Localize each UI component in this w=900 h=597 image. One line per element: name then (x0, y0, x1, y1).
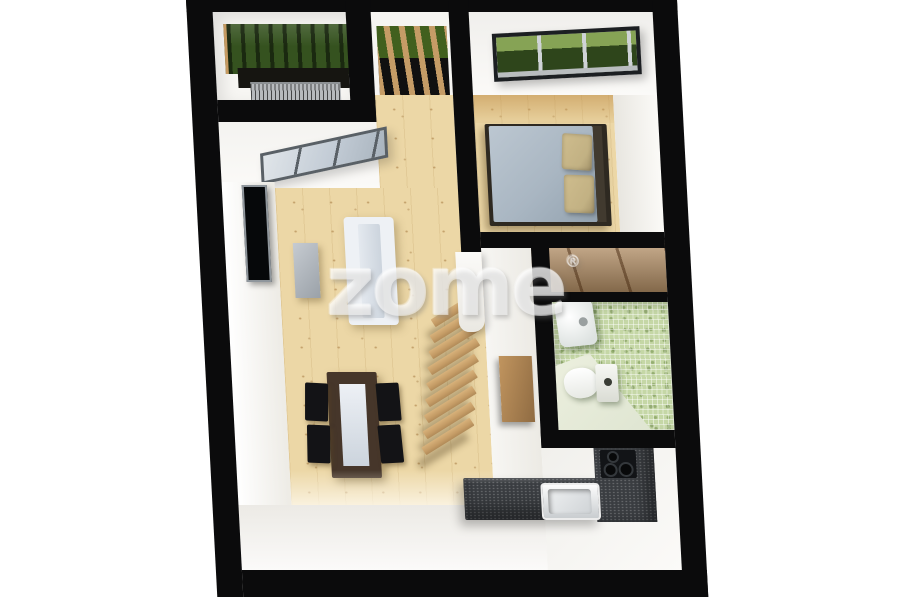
dining-chair (375, 383, 401, 422)
cooktop (600, 450, 637, 478)
headboard-wood-band (473, 95, 614, 123)
plant-bed (223, 24, 352, 74)
bedroom-right-wall-face (613, 95, 664, 232)
pillow (564, 174, 595, 213)
dining-chair (307, 425, 331, 464)
bedroom-window (492, 26, 642, 82)
sideboard (293, 243, 321, 298)
burner (607, 451, 620, 463)
wall-bathroom-bottom (541, 430, 676, 448)
wall-outer-bottom (242, 570, 708, 597)
corridor-wood-panel (499, 356, 535, 422)
dining-chair (377, 424, 404, 463)
burner (618, 462, 634, 477)
floorplan-render: zome® (0, 0, 900, 597)
tv-screen (242, 185, 272, 282)
room-bedroom (469, 12, 665, 232)
kitchen-sink (540, 483, 601, 520)
burner (603, 463, 618, 477)
watermark-logo: zome® (326, 244, 581, 328)
flush-button (604, 378, 612, 386)
pillow (562, 133, 593, 171)
dining-table (326, 372, 382, 478)
wall-outer-top (186, 0, 678, 12)
dining-chair (305, 382, 328, 421)
registered-mark: ® (565, 252, 581, 271)
room-balcony (213, 12, 351, 100)
wood-louver-screen (376, 26, 450, 102)
wall-balcony-bottom (217, 100, 376, 122)
watermark-text: zome (326, 237, 565, 335)
